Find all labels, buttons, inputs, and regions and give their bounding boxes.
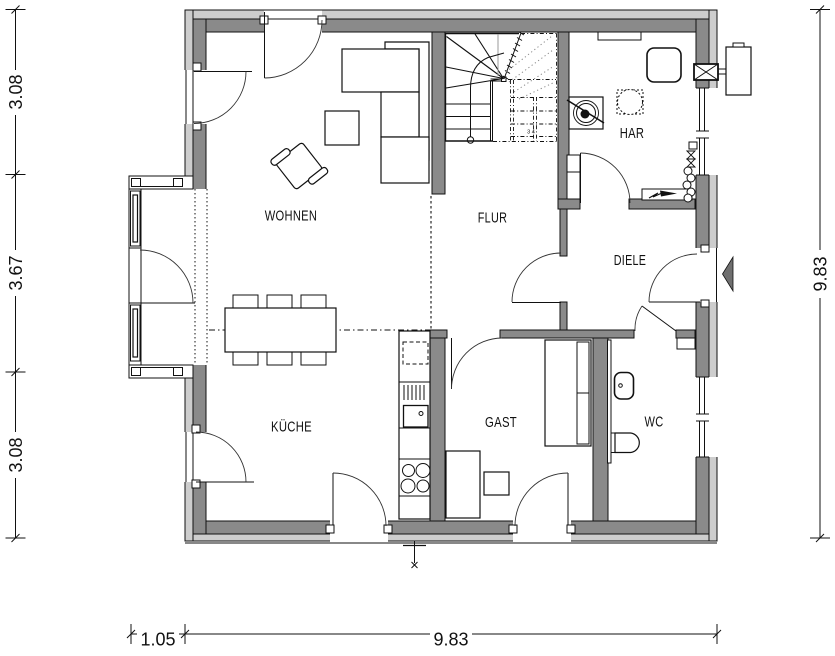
svg-text:DIELE: DIELE — [614, 252, 647, 269]
svg-text:3.08: 3.08 — [6, 437, 26, 472]
svg-text:FLUR: FLUR — [478, 210, 508, 227]
svg-text:3.67: 3.67 — [6, 255, 26, 290]
svg-text:3.08: 3.08 — [6, 74, 26, 109]
svg-text:1.05: 1.05 — [140, 630, 175, 650]
svg-text:KÜCHE: KÜCHE — [271, 418, 312, 436]
svg-text:GAST: GAST — [485, 414, 517, 431]
svg-text:HAR: HAR — [620, 125, 645, 142]
svg-text:9.83: 9.83 — [811, 256, 831, 291]
svg-text:9.83: 9.83 — [433, 630, 468, 650]
svg-text:WC: WC — [645, 414, 664, 431]
svg-text:WOHNEN: WOHNEN — [265, 208, 318, 225]
svg-text:3 4: 3 4 — [527, 130, 535, 136]
